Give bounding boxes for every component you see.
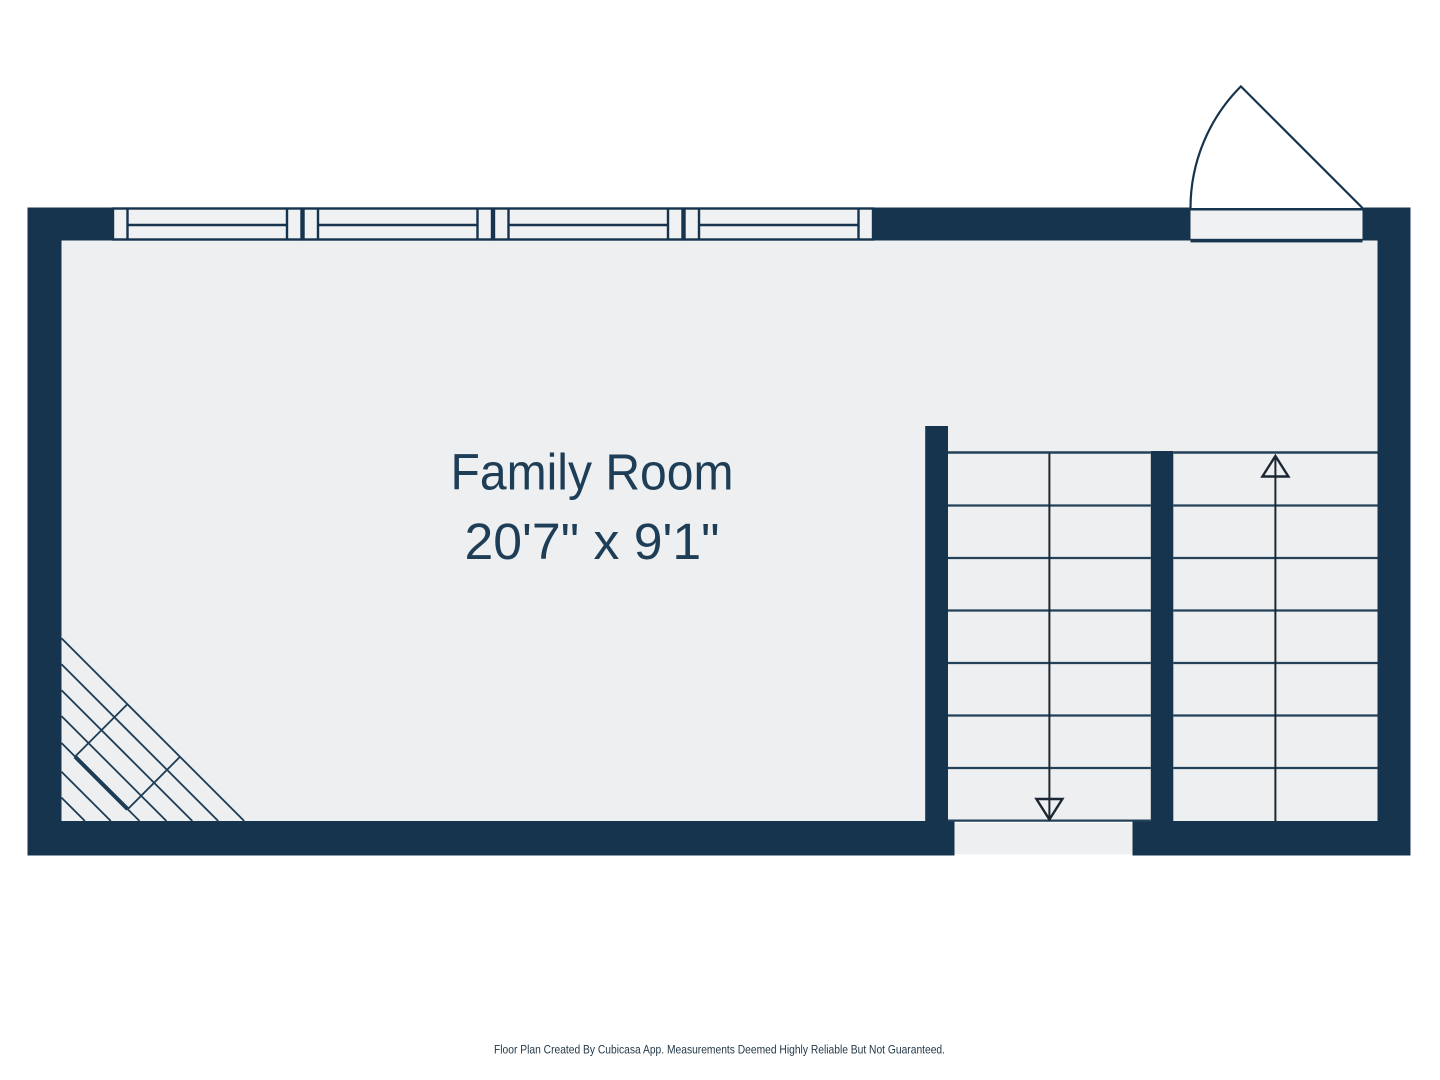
svg-text:20'7" x 9'1": 20'7" x 9'1": [465, 513, 720, 570]
svg-text:Floor Plan Created By Cubicasa: Floor Plan Created By Cubicasa App. Meas…: [494, 1042, 945, 1056]
svg-text:Family Room: Family Room: [451, 444, 734, 501]
